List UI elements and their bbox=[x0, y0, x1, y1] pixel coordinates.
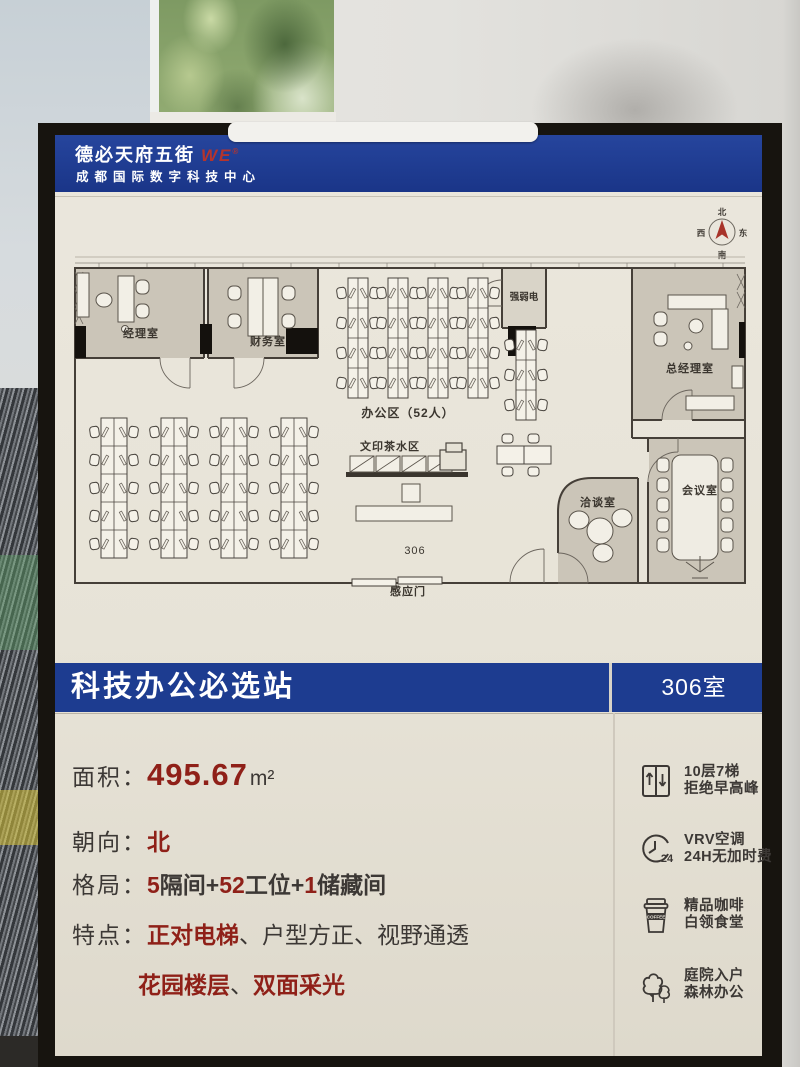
compass-east: 东 bbox=[739, 228, 748, 238]
sidebar-item-coffee: COFFEE 精品咖啡 白领食堂 bbox=[638, 896, 762, 936]
sidebar-item-elevator: 10层7梯 拒绝早高峰 bbox=[638, 762, 762, 802]
right-wall bbox=[782, 0, 800, 1067]
feature-view: 视野通透 bbox=[377, 916, 469, 950]
trees-icon bbox=[638, 966, 674, 1006]
sidebar-line: VRV空调 bbox=[684, 832, 772, 849]
label-negotiation: 洽谈室 bbox=[580, 495, 616, 509]
compass-north: 北 bbox=[718, 207, 727, 217]
layout-label: 格局： bbox=[72, 866, 147, 900]
title-banner: 科技办公必选站 306室 bbox=[55, 663, 762, 712]
window-frame bbox=[150, 0, 159, 126]
floorplan-svg: 北 南 西 东 bbox=[56, 200, 760, 658]
compass-icon: 北 南 西 东 bbox=[697, 207, 748, 260]
feature-separator: 、 bbox=[354, 916, 377, 950]
sidebar-line: 森林办公 bbox=[684, 985, 744, 1002]
carpet bbox=[0, 388, 38, 1038]
feature-separator: 、 bbox=[239, 916, 262, 950]
registered-mark: ® bbox=[232, 147, 240, 156]
carpet-green-stripe bbox=[0, 555, 38, 650]
poster-paper: 德必天府五街WE® 成都国际数字科技中心 北 南 西 东 bbox=[55, 135, 762, 1056]
compass-south: 南 bbox=[718, 250, 727, 260]
coffee-label: COFFEE bbox=[647, 915, 666, 920]
layout-storage-count: 1 bbox=[304, 872, 317, 899]
sidebar-line: 庭院入户 bbox=[684, 968, 744, 985]
sidebar-line: 精品咖啡 bbox=[684, 898, 744, 915]
layout-seats-text: 工位+ bbox=[245, 866, 304, 900]
features-label: 特点： bbox=[72, 916, 147, 950]
clock-24-icon: 24 bbox=[638, 830, 674, 870]
area-label: 面积： bbox=[72, 758, 147, 792]
area-row: 面积： 495.67 m² bbox=[72, 757, 274, 793]
room-number-badge: 306室 bbox=[612, 663, 762, 712]
sidebar-line: 拒绝早高峰 bbox=[684, 781, 759, 798]
label-room-number: 306 bbox=[404, 545, 425, 557]
label-finance: 财务室 bbox=[249, 334, 286, 348]
banner-title: 科技办公必选站 bbox=[71, 663, 295, 712]
layout-row: 格局： 5 隔间+ 52 工位+ 1 储藏间 bbox=[72, 866, 386, 900]
desk-pair-extra bbox=[497, 434, 551, 476]
photo-scene: 德必天府五街WE® 成都国际数字科技中心 北 南 西 东 bbox=[0, 0, 800, 1067]
label-sensor-door: 感应门 bbox=[390, 584, 426, 598]
clock-24-label: 24 bbox=[661, 853, 674, 865]
area-unit: m² bbox=[250, 767, 275, 791]
floorplan: 北 南 西 东 bbox=[56, 200, 760, 658]
layout-storage-text: 储藏间 bbox=[317, 866, 386, 900]
brand-line: 德必天府五街WE® bbox=[75, 141, 240, 167]
carpet-yellow-stripe bbox=[0, 790, 38, 845]
layout-rooms-count: 5 bbox=[147, 872, 160, 899]
feature-elevator: 正对电梯 bbox=[147, 916, 239, 950]
poster-frame: 德必天府五街WE® 成都国际数字科技中心 北 南 西 东 bbox=[38, 123, 782, 1067]
we-logo: WE bbox=[201, 146, 232, 165]
orientation-value: 北 bbox=[147, 823, 170, 857]
sidebar-crease bbox=[613, 713, 615, 1056]
label-utility: 强弱电 bbox=[510, 291, 539, 303]
label-general-manager: 总经理室 bbox=[666, 361, 714, 375]
sidebar-item-ac: 24 VRV空调 24H无加时费 bbox=[638, 830, 762, 870]
coffee-icon: COFFEE bbox=[638, 896, 674, 936]
dark-floor bbox=[0, 1036, 38, 1067]
sensor-door-panels bbox=[352, 577, 442, 586]
features-row: 特点： 正对电梯 、 户型方正 、 视野通透 bbox=[72, 916, 469, 950]
feature-garden-floor: 花园楼层 bbox=[138, 966, 230, 1000]
compass-west: 西 bbox=[697, 228, 706, 238]
features-row-2: 花园楼层 、 双面采光 bbox=[138, 966, 345, 1000]
header-seam bbox=[55, 196, 762, 197]
layout-rooms-text: 隔间+ bbox=[160, 866, 219, 900]
sidebar-line: 10层7梯 bbox=[684, 764, 759, 781]
orientation-row: 朝向： 北 bbox=[72, 823, 170, 857]
window-trees bbox=[158, 0, 334, 126]
label-print-tea: 文印茶水区 bbox=[360, 439, 420, 453]
label-manager: 经理室 bbox=[123, 326, 159, 340]
label-office-area: 办公区（52人） bbox=[361, 405, 454, 420]
sidebar-line: 白领食堂 bbox=[684, 915, 744, 932]
sidebar-item-garden: 庭院入户 森林办公 bbox=[638, 966, 762, 1006]
layout-seats-count: 52 bbox=[219, 872, 245, 899]
print-tea-counter bbox=[346, 443, 468, 521]
sidebar-line: 24H无加时费 bbox=[684, 849, 772, 866]
poster-header: 德必天府五街WE® 成都国际数字科技中心 bbox=[55, 135, 762, 192]
elevator-icon bbox=[638, 762, 674, 802]
poster-clip-tab bbox=[228, 122, 538, 142]
area-value: 495.67 bbox=[147, 757, 248, 793]
header-subtitle: 成都国际数字科技中心 bbox=[76, 166, 261, 185]
feature-square-layout: 户型方正 bbox=[262, 916, 354, 950]
feature-double-light: 双面采光 bbox=[253, 966, 345, 1000]
banner-seam bbox=[55, 713, 762, 714]
orientation-label: 朝向： bbox=[72, 823, 147, 857]
brand-name: 德必天府五街 bbox=[75, 145, 195, 165]
feature-separator: 、 bbox=[230, 966, 253, 1000]
label-meeting: 会议室 bbox=[682, 483, 718, 497]
